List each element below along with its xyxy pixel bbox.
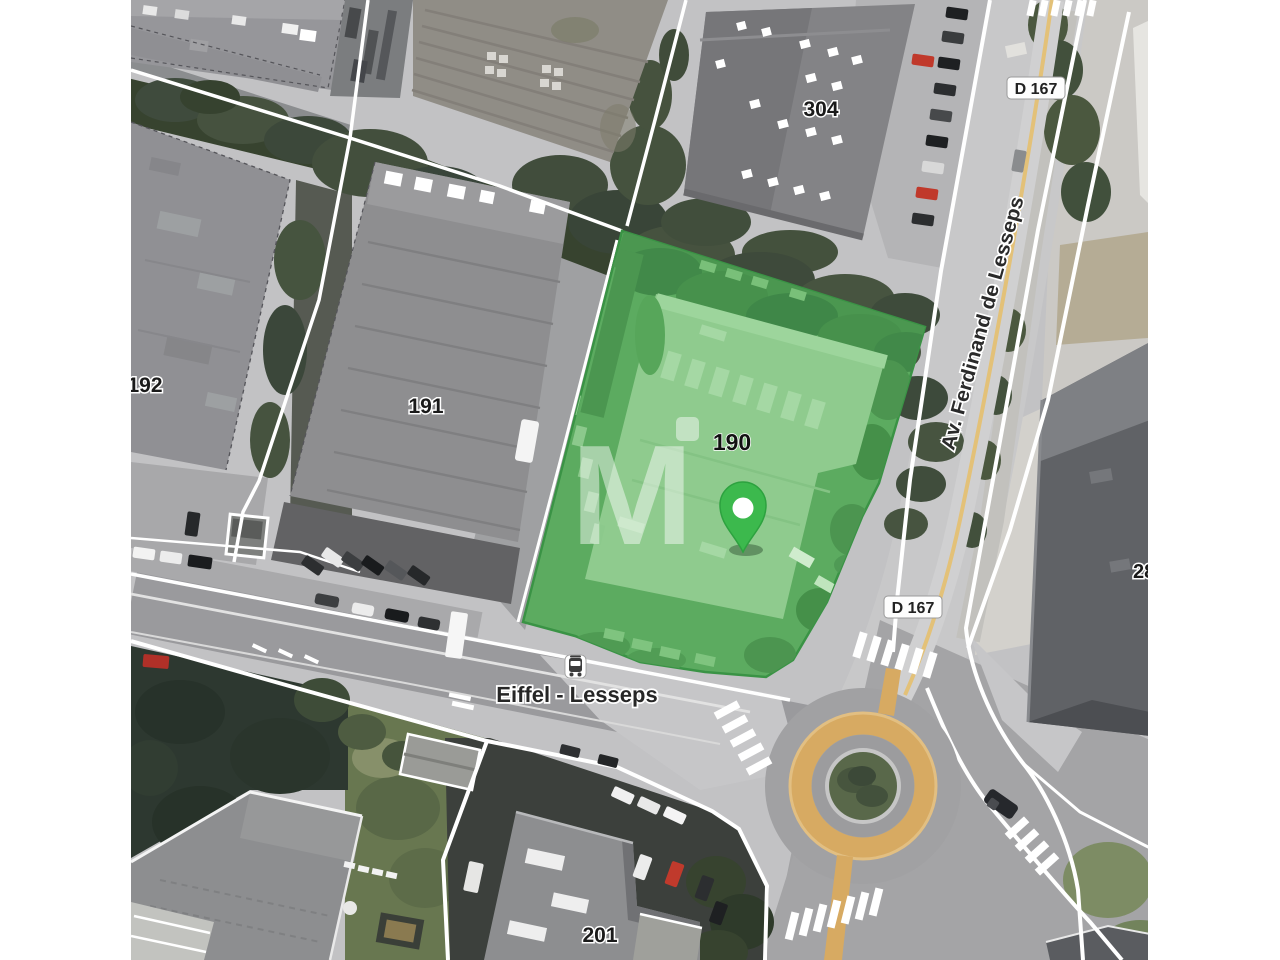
svg-text:201: 201 <box>582 924 617 947</box>
svg-text:M: M <box>571 416 694 575</box>
svg-text:192: 192 <box>127 374 162 397</box>
svg-text:D 167: D 167 <box>892 600 935 617</box>
svg-text:28: 28 <box>1133 561 1155 583</box>
svg-text:D 167: D 167 <box>1015 81 1058 98</box>
svg-text:304: 304 <box>803 98 838 121</box>
svg-text:190: 190 <box>713 429 751 455</box>
svg-text:Eiffel - Lesseps: Eiffel - Lesseps <box>496 682 657 707</box>
svg-text:191: 191 <box>408 395 443 418</box>
